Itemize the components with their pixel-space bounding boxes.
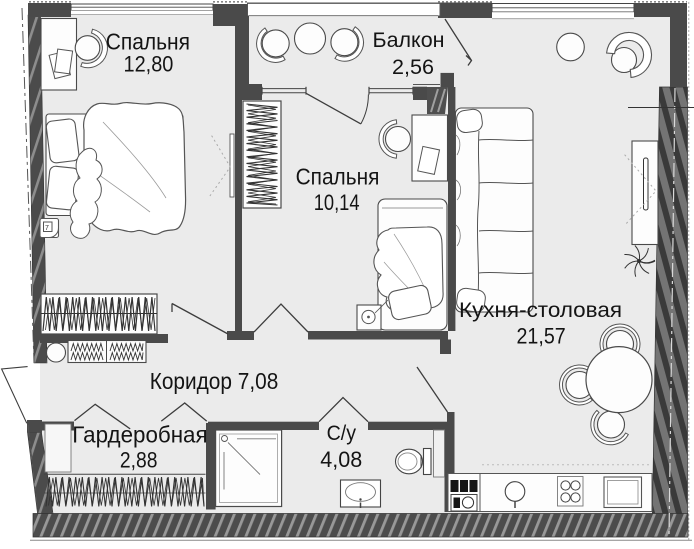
svg-text:Спальня: Спальня	[296, 164, 380, 190]
svg-text:2,88: 2,88	[120, 447, 158, 472]
svg-text:2,56: 2,56	[392, 55, 434, 79]
svg-text:21,57: 21,57	[517, 324, 566, 349]
svg-text:Коридор 7,08: Коридор 7,08	[150, 368, 279, 394]
svg-text:Гардеробная: Гардеробная	[72, 421, 207, 447]
svg-text:7: 7	[45, 225, 49, 232]
svg-text:Спальня: Спальня	[106, 28, 190, 54]
svg-text:Кухня-столовая: Кухня-столовая	[459, 298, 622, 322]
svg-text:Балкон: Балкон	[373, 28, 445, 52]
svg-text:С/у: С/у	[327, 422, 357, 445]
svg-text:10,14: 10,14	[314, 190, 360, 215]
svg-text:4,08: 4,08	[320, 447, 362, 472]
svg-text:12,80: 12,80	[124, 52, 174, 77]
